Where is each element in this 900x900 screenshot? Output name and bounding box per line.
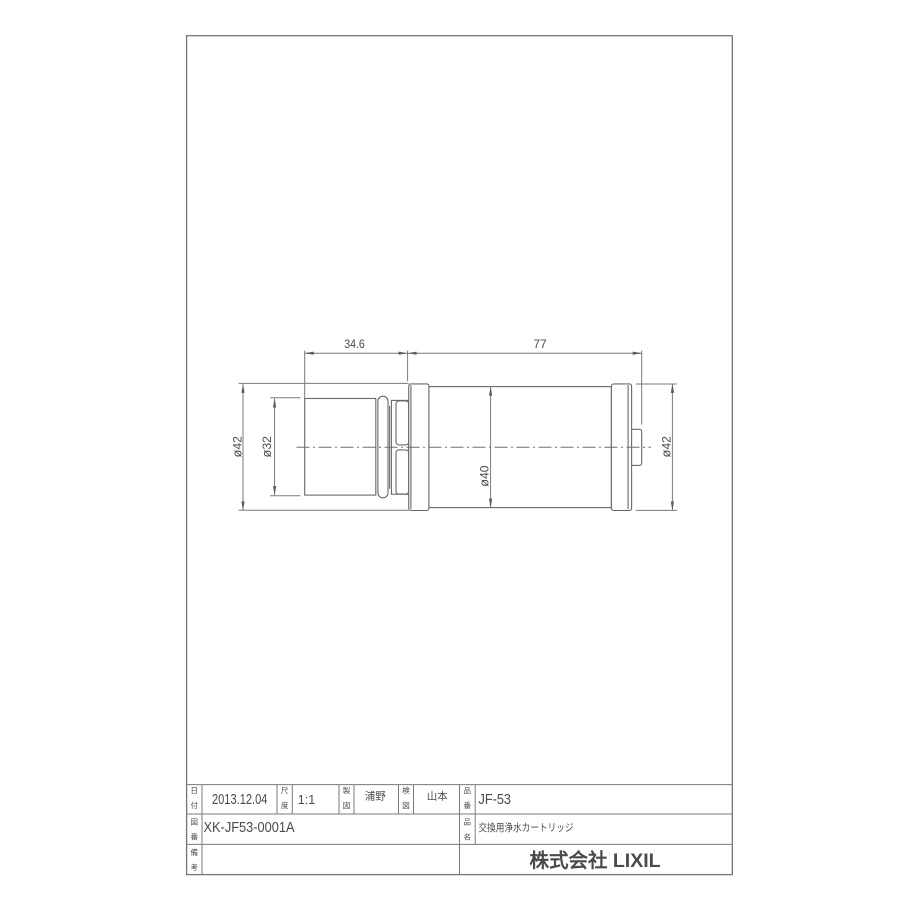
svg-text:交換用浄水カートリッジ: 交換用浄水カートリッジ (479, 821, 574, 834)
svg-text:度: 度 (281, 800, 289, 810)
svg-text:尺: 尺 (281, 786, 289, 795)
svg-text:ø42: ø42 (230, 436, 245, 458)
svg-text:XK-JF53-0001A: XK-JF53-0001A (204, 820, 295, 836)
svg-text:ø40: ø40 (477, 465, 492, 487)
svg-text:ø32: ø32 (259, 436, 274, 458)
svg-text:品: 品 (464, 817, 472, 826)
svg-text:ø42: ø42 (659, 436, 674, 458)
svg-text:浦野: 浦野 (365, 790, 386, 803)
svg-text:番: 番 (191, 831, 199, 841)
svg-text:図: 図 (343, 801, 351, 810)
svg-text:備: 備 (191, 847, 199, 857)
svg-text:1:1: 1:1 (298, 793, 315, 807)
svg-text:2013.12.04: 2013.12.04 (212, 792, 268, 808)
svg-text:77: 77 (533, 337, 547, 351)
svg-text:番: 番 (464, 800, 472, 810)
svg-text:検: 検 (402, 785, 410, 795)
svg-text:図: 図 (402, 801, 410, 810)
svg-text:JF-53: JF-53 (479, 792, 512, 808)
svg-text:製: 製 (343, 785, 351, 795)
svg-text:図: 図 (191, 817, 199, 826)
svg-text:名: 名 (464, 831, 472, 841)
svg-text:考: 考 (191, 863, 199, 872)
svg-text:株式会社 LIXIL: 株式会社 LIXIL (529, 849, 660, 872)
svg-text:付: 付 (191, 800, 199, 810)
svg-text:日: 日 (191, 786, 199, 795)
svg-text:品: 品 (464, 786, 472, 795)
svg-text:山本: 山本 (427, 790, 448, 803)
svg-text:34.6: 34.6 (344, 337, 365, 351)
